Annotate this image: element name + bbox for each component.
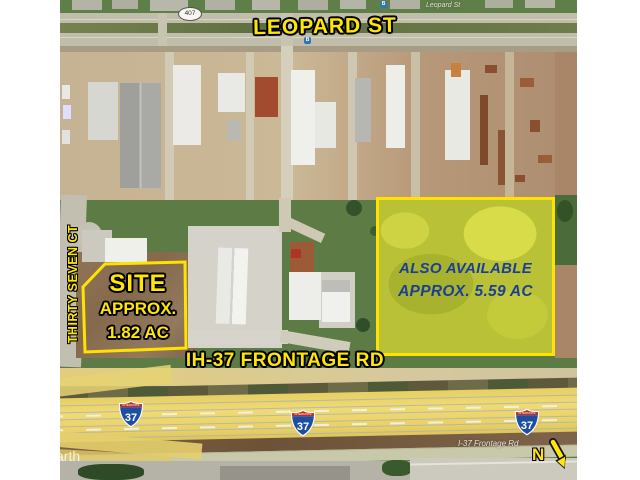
site-line3: 1.82 AC	[90, 321, 186, 344]
north-label: N	[532, 445, 544, 465]
interstate-37-shield: INTERSTATE 37	[514, 408, 540, 436]
route-407-shield: 407	[178, 7, 202, 21]
site-line1: SITE	[90, 270, 186, 297]
interstate-37-shield: INTERSTATE 37	[290, 409, 316, 437]
route-407-number: 407	[185, 10, 196, 17]
bus-stop-icon: B	[380, 1, 387, 8]
leopard-st-small-label: Leopard St	[426, 2, 460, 9]
interstate-number: 37	[521, 420, 533, 432]
interstate-number: 37	[125, 412, 137, 424]
satellite-map: ALSO AVAILABLE APPROX. 5.59 AC SITE APPR…	[60, 0, 577, 480]
frontage-rd-label: IH-37 FRONTAGE RD	[180, 350, 390, 372]
site-line2: APPROX.	[90, 297, 186, 321]
thirty-seven-ct-label: THIRTY SEVEN CT	[66, 218, 82, 350]
north-arrow-icon	[548, 438, 572, 472]
leopard-st-label: LEOPARD ST	[210, 13, 440, 41]
bus-stop-icon: B	[304, 37, 311, 44]
interstate-number: 37	[297, 421, 309, 433]
interstate-37-shield: INTERSTATE 37	[118, 400, 144, 428]
bus-stop-letter: B	[382, 1, 386, 7]
site-label: SITE APPROX. 1.82 AC	[90, 270, 186, 344]
frontage-rd-small-label: I-37 Frontage Rd	[458, 439, 518, 448]
aerial-listing-image: ALSO AVAILABLE APPROX. 5.59 AC SITE APPR…	[0, 0, 640, 480]
bus-stop-letter: B	[306, 37, 310, 43]
watermark-text: arth	[60, 448, 80, 464]
